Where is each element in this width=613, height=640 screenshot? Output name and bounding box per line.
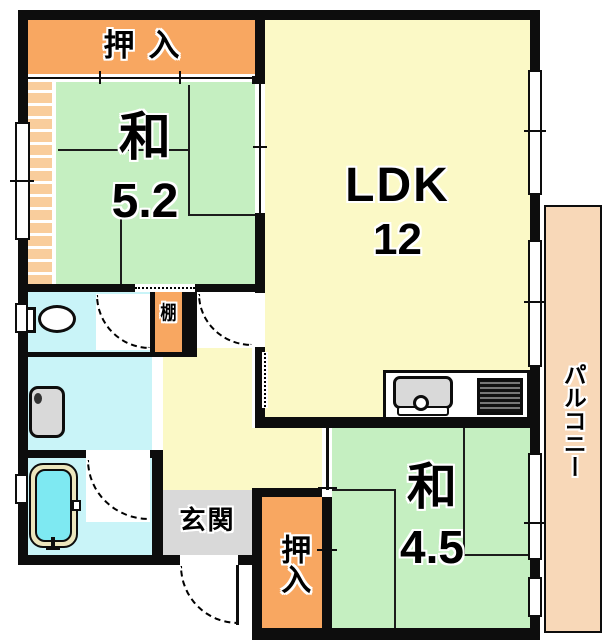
closet-bottom-label: 押入 <box>262 502 322 626</box>
tick-mark <box>253 146 267 148</box>
wall <box>322 497 332 628</box>
fusuma-line <box>259 83 261 213</box>
faucet-icon <box>413 395 429 411</box>
tick-mark <box>179 71 181 84</box>
tick-mark <box>99 71 101 84</box>
dotted-opening <box>135 287 195 289</box>
toilet-bowl <box>38 305 76 333</box>
wall <box>252 628 540 640</box>
wall <box>252 76 265 84</box>
wall <box>18 10 540 20</box>
door-opening <box>255 293 265 347</box>
balcony-label: パルコニー <box>546 300 600 540</box>
stove-icon <box>477 378 523 415</box>
hallway-extension <box>252 428 322 488</box>
wall <box>252 488 262 640</box>
dotted-opening <box>264 353 266 407</box>
closet-top-label: 押入 <box>28 28 255 64</box>
bathtub-water <box>35 469 72 542</box>
wall <box>182 292 197 352</box>
wall <box>255 417 540 428</box>
shelf-label: 棚 <box>153 303 184 325</box>
wall <box>255 20 265 83</box>
tick-mark <box>10 180 34 182</box>
bathtub-handle <box>72 500 81 511</box>
wall <box>152 458 163 565</box>
door-opening <box>180 555 238 565</box>
door-leaf <box>236 565 239 625</box>
door-opening <box>86 450 150 458</box>
opening <box>152 357 163 450</box>
window-marker-icon <box>15 474 28 504</box>
washitsu-4-5-size: 4.5 <box>337 524 527 570</box>
window-marker-icon <box>528 577 542 617</box>
floor-plan: 押入 和 5.2 LDK 12 棚 玄関 押入 和 4.5 パルコニー <box>0 0 613 640</box>
washbasin-drain <box>34 393 42 404</box>
window-marker-icon <box>15 303 28 333</box>
tick-mark <box>524 522 546 524</box>
door-swing-arc-icon <box>180 566 238 624</box>
washitsu-5-2-label: 和 <box>55 112 235 164</box>
ldk-label: LDK <box>280 162 515 210</box>
tick-mark <box>524 301 546 303</box>
wall <box>255 213 265 293</box>
tick-mark <box>524 130 546 132</box>
fusuma-line <box>28 77 255 79</box>
wall <box>18 555 165 565</box>
window-marker-icon <box>528 70 542 195</box>
genkan-label: 玄関 <box>163 506 252 536</box>
tatami-edge-strip <box>28 80 52 284</box>
wall <box>18 352 197 357</box>
wall <box>252 488 322 497</box>
ldk-size: 12 <box>280 218 515 262</box>
tick-mark <box>318 487 337 489</box>
fusuma-line <box>326 428 329 490</box>
bathtub-faucet-bar <box>46 547 60 550</box>
window-marker-icon <box>528 453 542 560</box>
washitsu-5-2-size: 5.2 <box>55 178 235 226</box>
window-marker-icon <box>528 240 542 367</box>
washitsu-4-5-label: 和 <box>337 462 527 512</box>
